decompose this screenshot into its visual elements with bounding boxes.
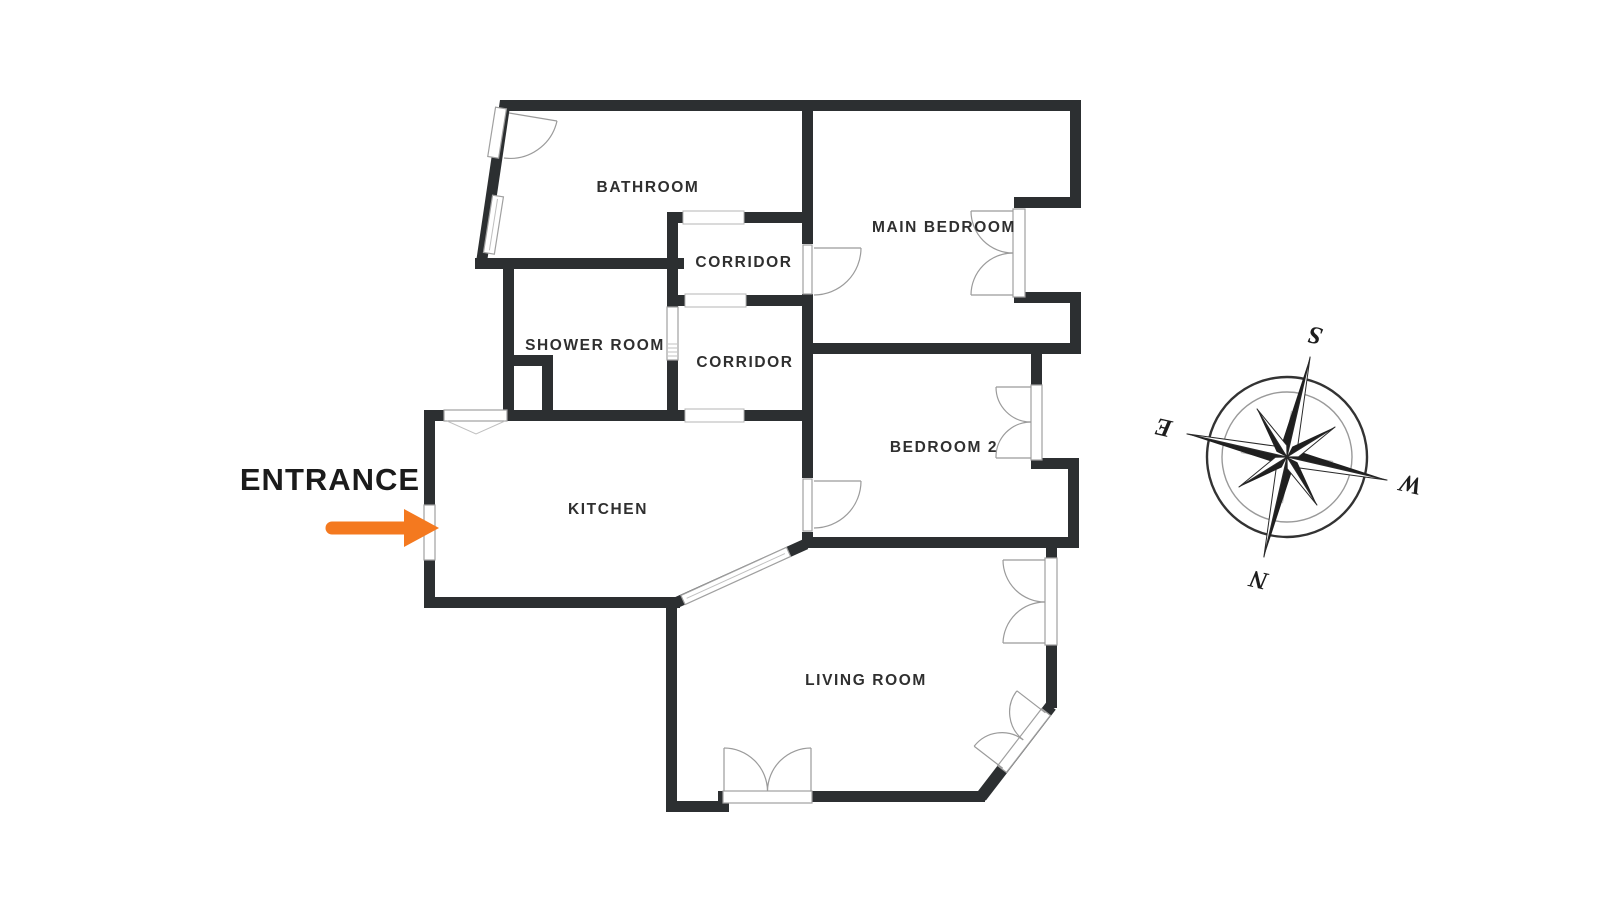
opening-corridor-kitchen xyxy=(685,409,744,422)
entrance-arrow-icon xyxy=(332,509,439,547)
room-labels: BATHROOM CORRIDOR MAIN BEDROOM SHOWER RO… xyxy=(525,179,1016,689)
room-label-corridor-upper: CORRIDOR xyxy=(695,254,792,271)
kitchen-glazed-partition xyxy=(681,547,791,604)
room-label-bedroom-2: BEDROOM 2 xyxy=(890,439,998,456)
compass-secondary-points xyxy=(1234,404,1341,511)
kitchen-window xyxy=(444,410,507,421)
entrance-annotation: ENTRANCE xyxy=(240,462,439,547)
bedroom-2-window xyxy=(1031,385,1042,460)
room-label-kitchen: KITCHEN xyxy=(568,501,648,518)
room-label-corridor-lower: CORRIDOR xyxy=(696,354,793,371)
living-room-bottom-window xyxy=(723,791,812,803)
main-bedroom-door xyxy=(803,245,812,294)
bedroom-2-door xyxy=(803,479,812,531)
passage-openings xyxy=(683,211,746,422)
room-label-living-room: LIVING ROOM xyxy=(805,672,927,689)
compass-label-north: N xyxy=(1246,564,1272,595)
compass-rose: N S E W xyxy=(1124,291,1453,623)
shower-room-sliding-door xyxy=(667,307,678,360)
compass-label-east: E xyxy=(1152,412,1175,442)
living-room-chamfer-window xyxy=(974,690,1051,772)
living-room-right-window xyxy=(1045,558,1057,645)
room-label-main-bedroom: MAIN BEDROOM xyxy=(872,219,1016,236)
entrance-label: ENTRANCE xyxy=(240,462,420,497)
opening-corridor-corridor xyxy=(685,294,746,307)
compass-label-south: S xyxy=(1305,320,1325,349)
walls xyxy=(424,100,1081,812)
opening-bathroom-corridor xyxy=(683,211,744,224)
windows xyxy=(444,195,1057,803)
room-label-bathroom: BATHROOM xyxy=(597,179,700,196)
floor-plan-page: BATHROOM CORRIDOR MAIN BEDROOM SHOWER RO… xyxy=(0,0,1600,900)
compass-label-west: W xyxy=(1395,468,1424,500)
floor-plan-svg: BATHROOM CORRIDOR MAIN BEDROOM SHOWER RO… xyxy=(0,0,1600,900)
room-label-shower-room: SHOWER ROOM xyxy=(525,337,665,354)
